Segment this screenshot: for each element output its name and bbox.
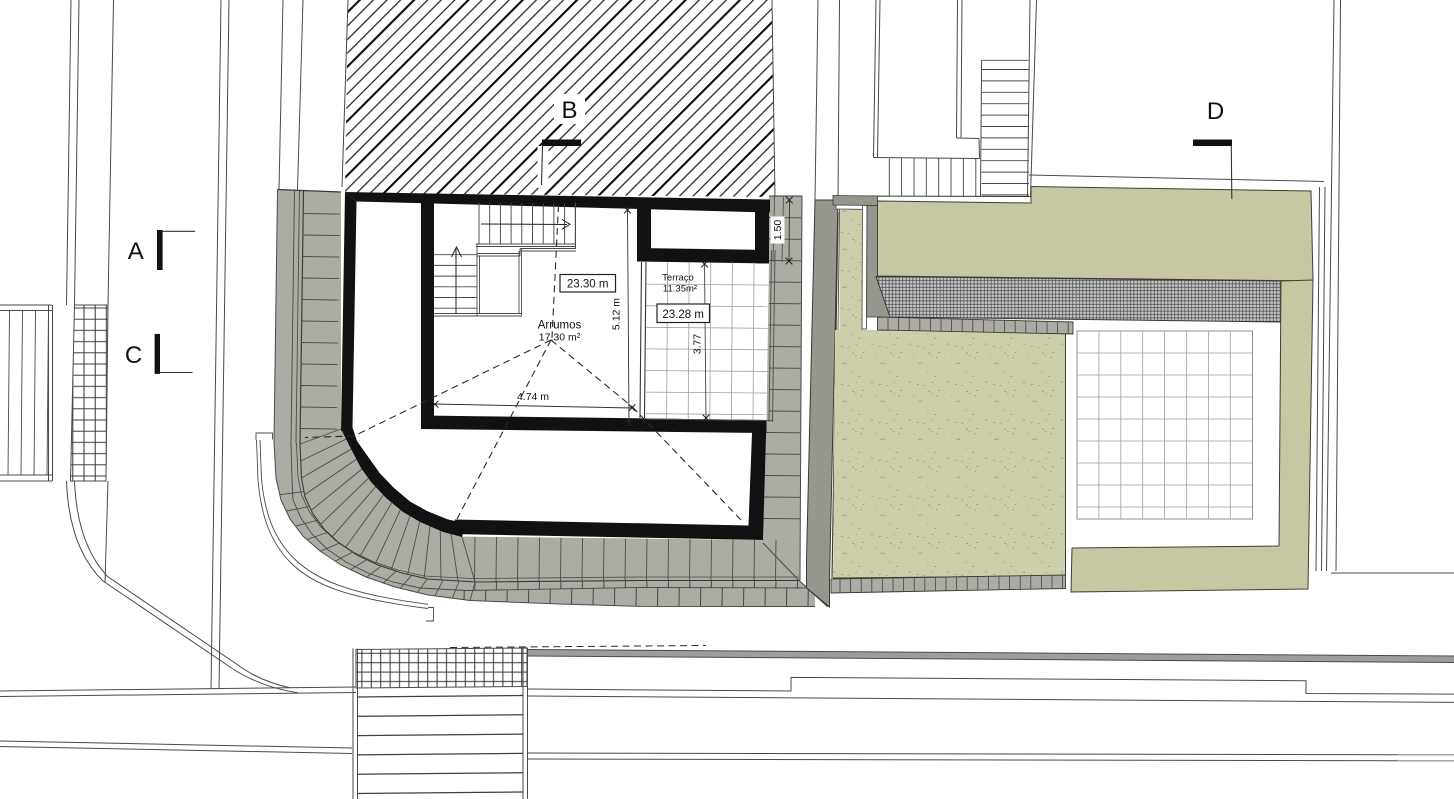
svg-text:3.77: 3.77: [692, 334, 704, 355]
svg-text:B: B: [561, 97, 577, 124]
svg-text:4.74 m: 4.74 m: [517, 391, 549, 403]
svg-text:5.12 m: 5.12 m: [611, 298, 623, 330]
svg-text:Terraço: Terraço: [662, 273, 694, 284]
svg-text:11.35m²: 11.35m²: [663, 284, 697, 295]
svg-text:C: C: [125, 342, 142, 369]
svg-text:Arrumos: Arrumos: [538, 319, 582, 331]
svg-text:23.28 m: 23.28 m: [662, 309, 704, 321]
svg-text:23.30 m: 23.30 m: [567, 279, 609, 291]
svg-text:17.30 m²: 17.30 m²: [539, 332, 581, 344]
svg-text:D: D: [1207, 98, 1224, 125]
svg-text:A: A: [128, 238, 144, 265]
svg-text:1.50: 1.50: [772, 220, 784, 241]
